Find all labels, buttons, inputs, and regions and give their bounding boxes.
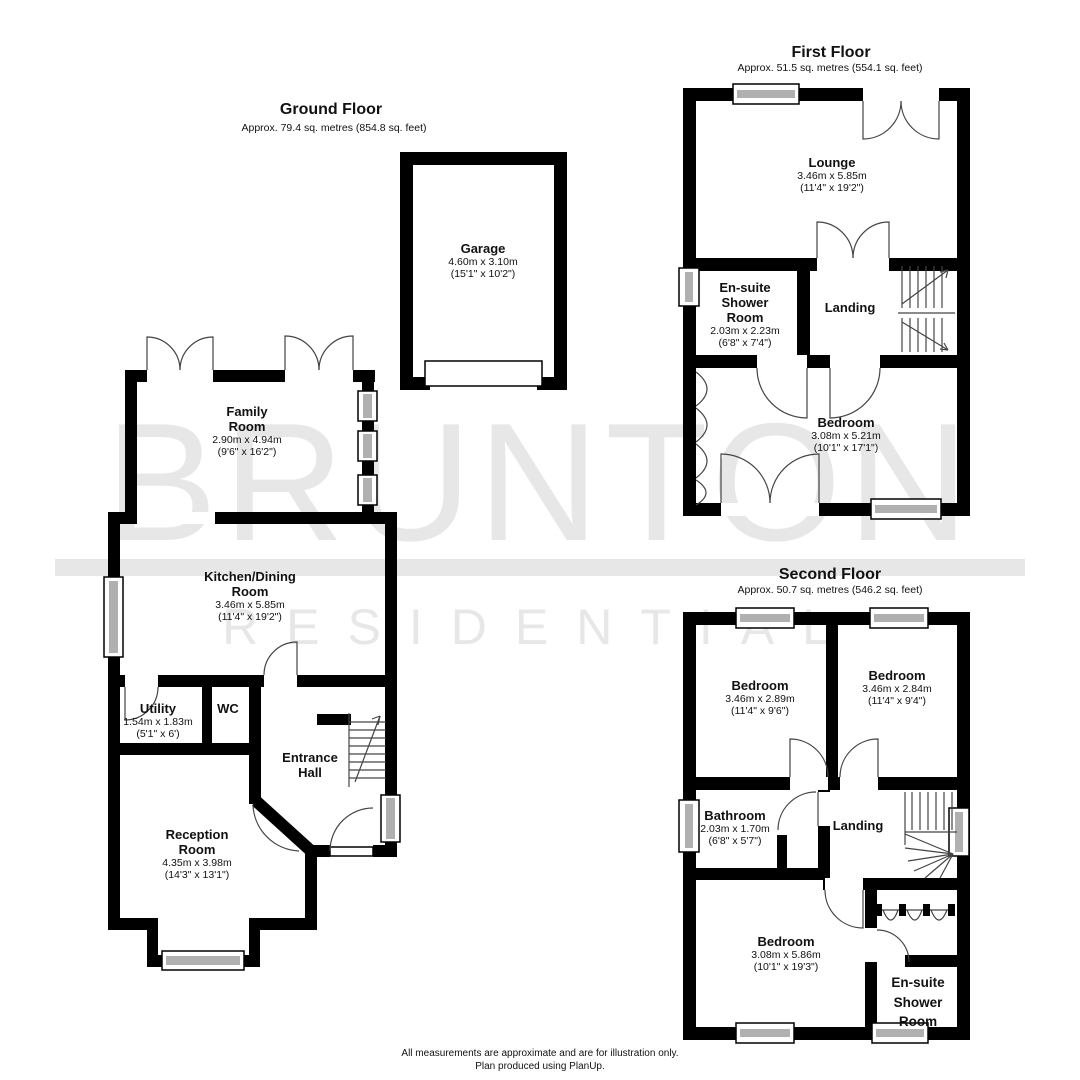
ground-floor-subtitle: Approx. 79.4 sq. metres (854.8 sq. feet) [241,122,426,134]
room-label-garage: Garage 4.60m x 3.10m (15'1" x 10'2") [448,241,517,280]
second-floor-doors [778,739,909,962]
floorplan-drawing [0,0,1080,1080]
room-label-reception-room: Reception Room 4.35m x 3.98m (14'3" x 13… [162,827,231,882]
room-label-bathroom: Bathroom 2.03m x 1.70m (6'8" x 5'7") [700,808,769,847]
garage-door [425,361,542,386]
room-label-bedroom-2c: Bedroom 3.08m x 5.86m (10'1" x 19'3") [751,934,820,973]
disclaimer: All measurements are approximate and are… [401,1048,678,1073]
room-label-bedroom-2a: Bedroom 3.46m x 2.89m (11'4" x 9'6") [725,678,794,717]
front-door [330,847,373,856]
room-label-bedroom-2b: Bedroom 3.46m x 2.84m (11'4" x 9'4") [862,668,931,707]
floorplan-page: BRUNTON RESIDENTIAL [0,0,1080,1080]
disclaimer-line2: Plan produced using PlanUp. [401,1061,678,1074]
second-floor-subtitle: Approx. 50.7 sq. metres (546.2 sq. feet) [737,584,922,596]
room-label-entrance-hall: Entrance Hall [282,750,338,780]
room-label-ensuite-first: En-suite Shower Room 2.03m x 2.23m (6'8"… [710,280,779,350]
room-label-lounge: Lounge 3.46m x 5.85m (11'4" x 19'2") [797,155,866,194]
first-floor-title: First Floor [791,44,870,62]
room-label-landing-second: Landing [833,818,884,833]
room-label-kitchen-dining: Kitchen/Dining Room 3.46m x 5.85m (11'4"… [204,569,296,624]
room-label-landing-first: Landing [825,300,876,315]
room-label-family-room: Family Room 2.90m x 4.94m (9'6" x 16'2") [212,404,281,459]
second-floor-wardrobe [875,904,955,920]
disclaimer-line1: All measurements are approximate and are… [401,1048,678,1061]
second-floor-title: Second Floor [779,566,881,584]
ground-floor-title: Ground Floor [280,101,382,119]
room-label-wc: WC [217,701,239,716]
room-label-bedroom-first: Bedroom 3.08m x 5.21m (10'1" x 17'1") [811,415,880,454]
room-label-ensuite-second: En-suite Shower Room [891,973,944,1032]
first-floor-stairs [898,266,955,352]
ground-floor-stairs [349,713,386,787]
first-floor-subtitle: Approx. 51.5 sq. metres (554.1 sq. feet) [737,62,922,74]
room-label-utility: Utility 1.54m x 1.83m (5'1" x 6') [123,701,192,740]
